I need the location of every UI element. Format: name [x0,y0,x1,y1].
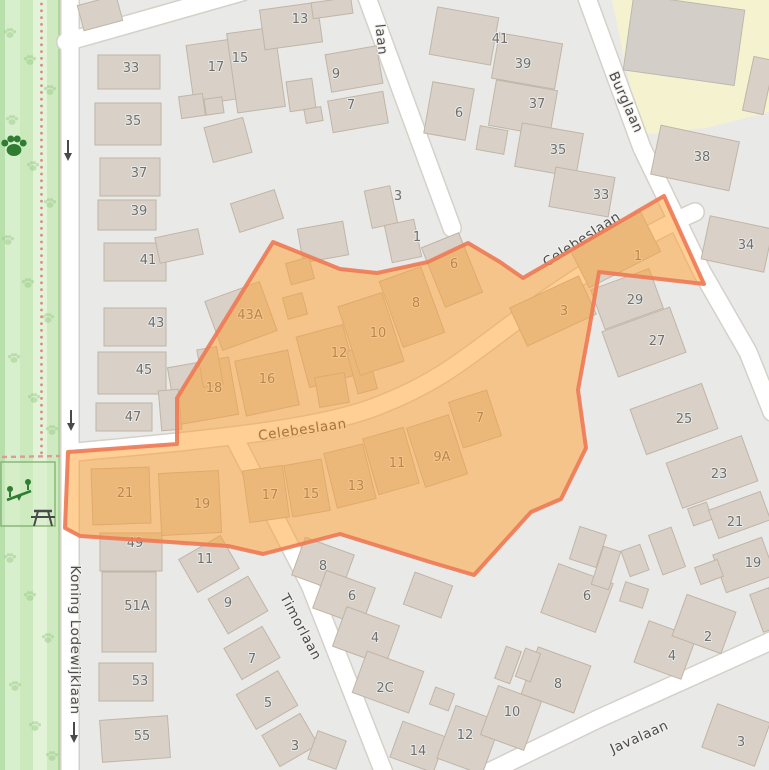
building [304,107,323,124]
house-number-label: 7 [248,652,256,667]
house-number-label: 17 [208,60,225,75]
house-number-label: 29 [627,293,644,308]
house-number-label: 41 [140,253,157,268]
house-number-label: 47 [125,410,142,425]
house-number-label: 12 [457,728,474,743]
map-canvas[interactable]: 33353739414345474951A5355171513973141393… [0,0,769,770]
house-number-label: 37 [131,166,148,181]
building [204,97,224,115]
house-number-label: 6 [583,589,591,604]
house-number-label: 8 [554,677,562,692]
house-number-label: 14 [410,744,427,759]
house-number-label: 35 [125,114,142,129]
house-number-label: 9 [332,67,340,82]
building [98,200,156,230]
house-number-label: 3 [737,735,745,750]
house-number-label: 43 [148,316,165,331]
house-number-label: 6 [348,589,356,604]
house-number-label: 35 [550,143,567,158]
house-number-label: 7 [347,98,355,113]
house-number-label: 15 [232,51,249,66]
house-number-label: 34 [738,238,755,253]
house-number-label: 21 [727,515,744,530]
house-number-label: 3 [291,739,299,754]
building [98,352,166,394]
building [429,7,498,65]
house-number-label: 53 [132,674,149,689]
house-number-label: 25 [676,412,693,427]
house-number-label: 39 [131,204,148,219]
house-number-label: 8 [319,559,327,574]
house-number-label: 3 [394,189,402,204]
house-number-label: 5 [264,696,272,711]
house-number-label: 2 [704,630,712,645]
house-number-label: 33 [123,61,140,76]
house-number-label: 39 [515,57,532,72]
house-number-label: 1 [413,230,421,245]
building [424,82,474,141]
street-name-label: laan [371,23,390,56]
house-number-label: 37 [529,97,546,112]
house-number-label: 38 [694,150,711,165]
house-number-label: 6 [455,106,463,121]
house-number-label: 13 [292,12,309,27]
house-number-label: 33 [593,188,610,203]
house-number-label: 41 [492,32,509,47]
house-number-label: 4 [371,631,379,646]
house-number-label: 51A [124,599,150,614]
house-number-label: 9 [224,596,232,611]
building [476,126,508,154]
building [179,93,206,118]
school-building [623,0,744,85]
building [286,78,316,111]
park-strip [0,0,63,770]
street-name-label: Koning Lodewijklaan [67,565,83,714]
house-number-label: 10 [504,705,521,720]
house-number-label: 11 [197,552,214,567]
house-number-label: 27 [649,334,666,349]
house-number-label: 4 [668,649,676,664]
house-number-label: 55 [134,729,151,744]
house-number-label: 23 [711,467,728,482]
house-number-label: 19 [745,556,762,571]
house-number-label: 2C [376,681,393,696]
house-number-label: 45 [136,363,153,378]
